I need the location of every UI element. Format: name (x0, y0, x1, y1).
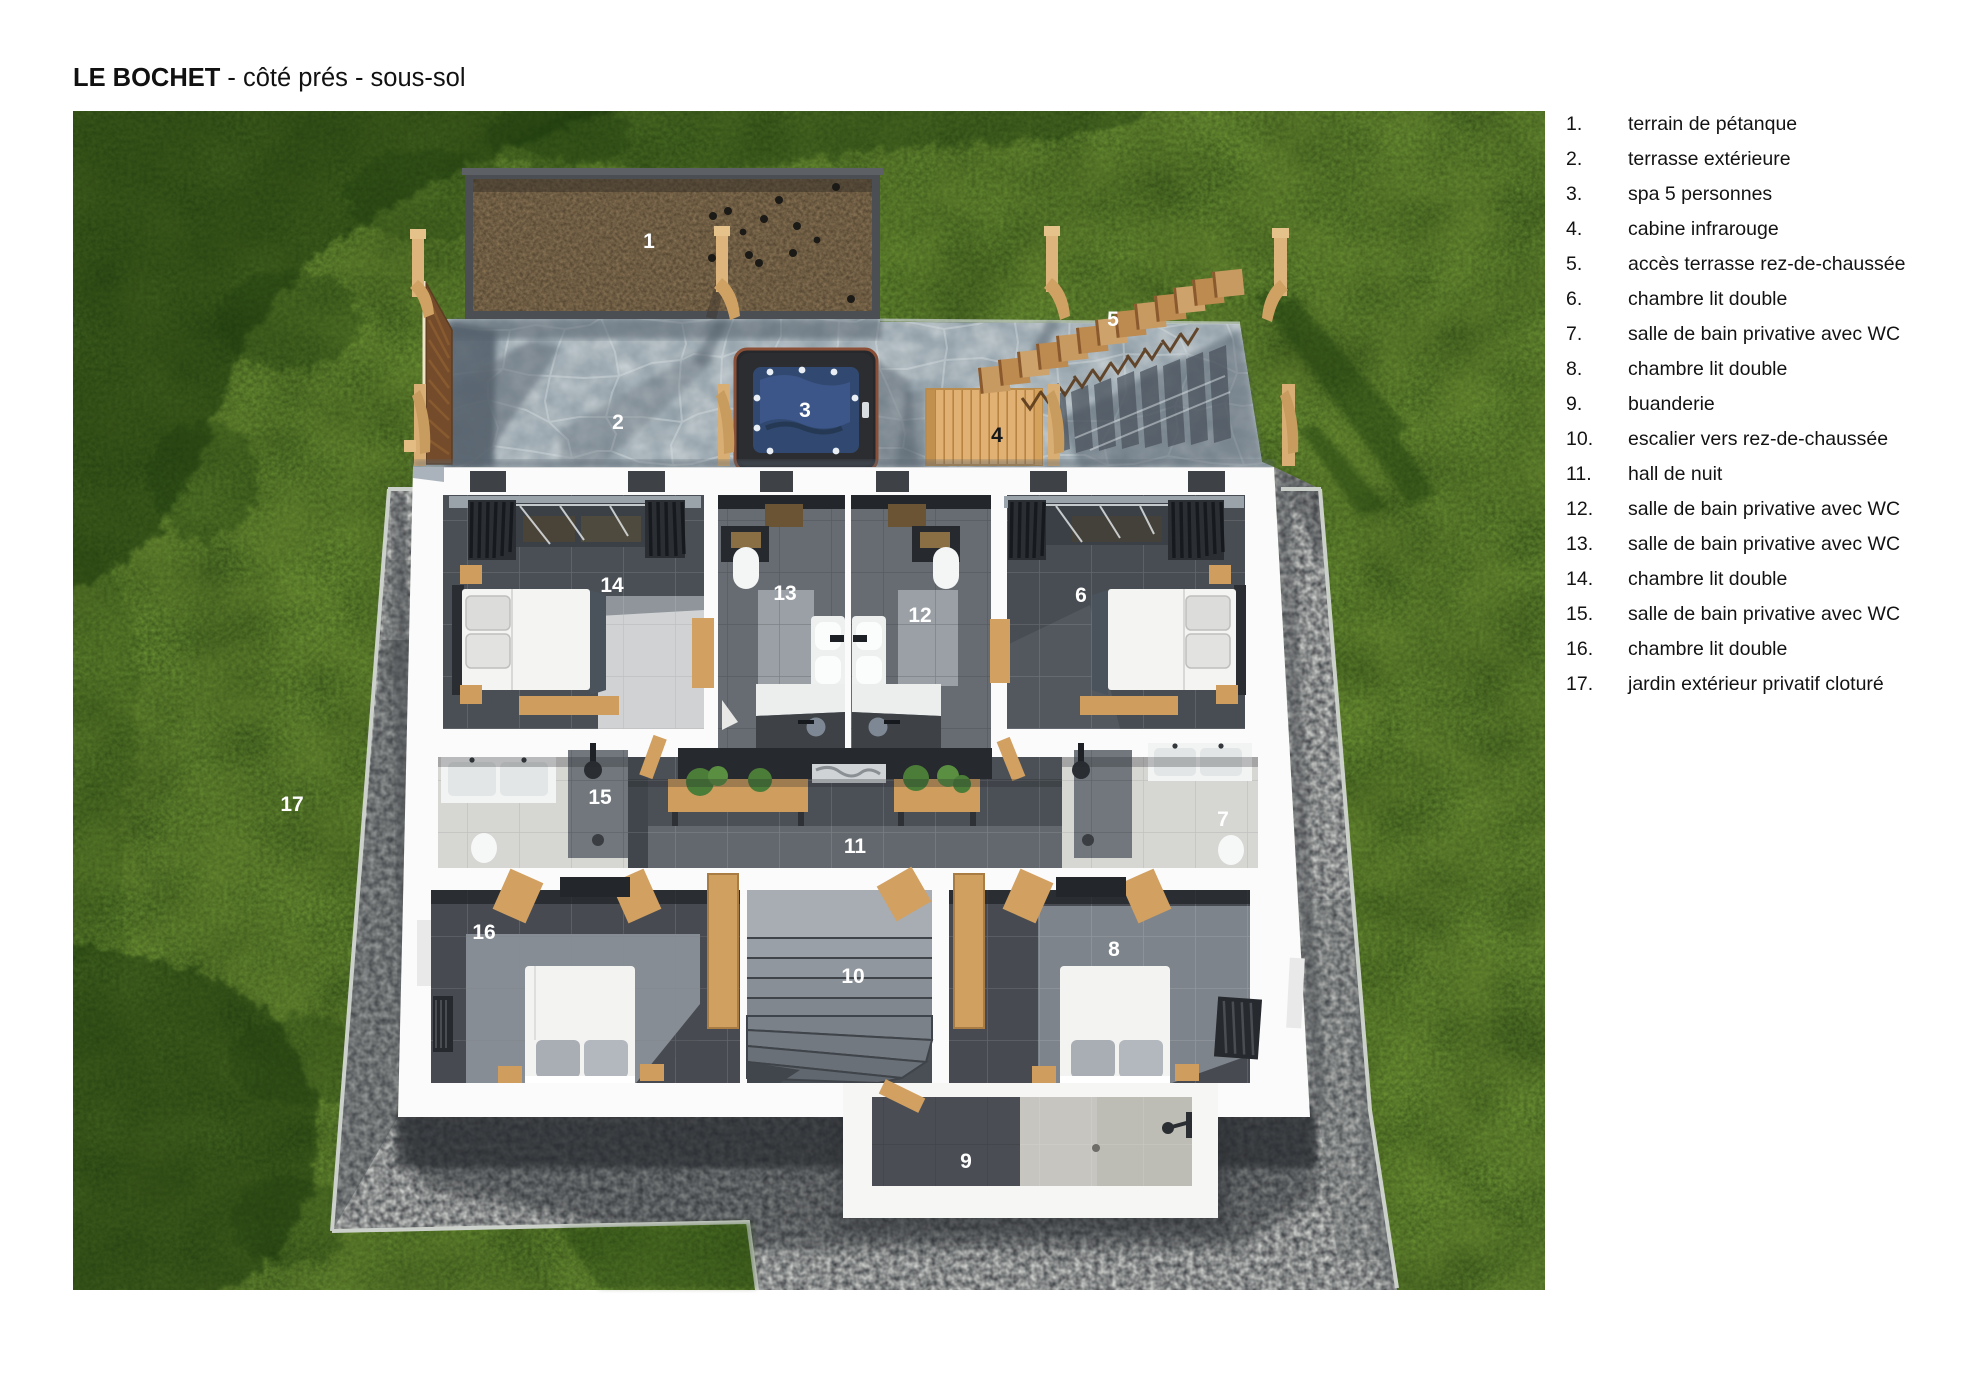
svg-text:11.: 11. (1566, 463, 1592, 485)
svg-text:8: 8 (1108, 938, 1120, 961)
svg-text:13: 13 (773, 582, 796, 605)
svg-text:chambre lit double: chambre lit double (1628, 288, 1787, 310)
svg-text:5.: 5. (1566, 253, 1582, 275)
svg-text:chambre lit double: chambre lit double (1628, 358, 1787, 380)
svg-text:12.: 12. (1566, 498, 1593, 520)
svg-text:buanderie: buanderie (1628, 393, 1715, 415)
svg-text:16.: 16. (1566, 638, 1593, 660)
svg-text:spa 5 personnes: spa 5 personnes (1628, 183, 1772, 205)
svg-text:15.: 15. (1566, 603, 1593, 625)
svg-text:4: 4 (991, 424, 1003, 447)
svg-text:10: 10 (841, 965, 864, 988)
svg-text:14.: 14. (1566, 568, 1593, 590)
svg-text:9.: 9. (1566, 393, 1582, 415)
svg-text:14: 14 (600, 574, 624, 597)
svg-text:escalier vers rez-de-chaussée: escalier vers rez-de-chaussée (1628, 428, 1888, 450)
svg-text:salle de bain privative avec W: salle de bain privative avec WC (1628, 498, 1900, 520)
svg-text:13.: 13. (1566, 533, 1593, 555)
svg-text:15: 15 (588, 786, 612, 809)
svg-text:accès terrasse rez-de-chaussée: accès terrasse rez-de-chaussée (1628, 253, 1905, 275)
svg-text:5: 5 (1107, 308, 1119, 331)
svg-text:chambre lit double: chambre lit double (1628, 638, 1787, 660)
svg-text:chambre lit double: chambre lit double (1628, 568, 1787, 590)
svg-text:jardin extérieur privatif clot: jardin extérieur privatif cloturé (1627, 673, 1884, 695)
svg-text:17.: 17. (1566, 673, 1593, 695)
svg-text:10.: 10. (1566, 428, 1593, 450)
svg-text:7.: 7. (1566, 323, 1582, 345)
svg-text:2: 2 (612, 411, 624, 434)
svg-text:16: 16 (472, 921, 495, 944)
svg-text:12: 12 (908, 604, 931, 627)
svg-text:LE BOCHET - côté prés - sous-s: LE BOCHET - côté prés - sous-sol (73, 64, 466, 92)
svg-text:17: 17 (280, 793, 303, 816)
svg-text:1.: 1. (1566, 113, 1582, 135)
svg-text:1: 1 (643, 230, 655, 253)
svg-text:cabine infrarouge: cabine infrarouge (1628, 218, 1779, 240)
svg-text:11: 11 (844, 835, 867, 858)
svg-text:salle de bain privative avec W: salle de bain privative avec WC (1628, 603, 1900, 625)
svg-text:terrain de pétanque: terrain de pétanque (1628, 113, 1797, 135)
svg-text:2.: 2. (1566, 148, 1582, 170)
svg-text:hall de nuit: hall de nuit (1628, 463, 1723, 485)
svg-text:3: 3 (799, 399, 811, 422)
svg-text:4.: 4. (1566, 218, 1582, 240)
svg-text:terrasse extérieure: terrasse extérieure (1628, 148, 1791, 170)
svg-text:6.: 6. (1566, 288, 1582, 310)
svg-text:salle de bain privative avec W: salle de bain privative avec WC (1628, 323, 1900, 345)
svg-text:salle de bain privative avec W: salle de bain privative avec WC (1628, 533, 1900, 555)
svg-text:7: 7 (1217, 808, 1229, 831)
svg-text:3.: 3. (1566, 183, 1582, 205)
svg-text:9: 9 (960, 1150, 972, 1173)
svg-text:6: 6 (1075, 584, 1087, 607)
svg-text:8.: 8. (1566, 358, 1582, 380)
